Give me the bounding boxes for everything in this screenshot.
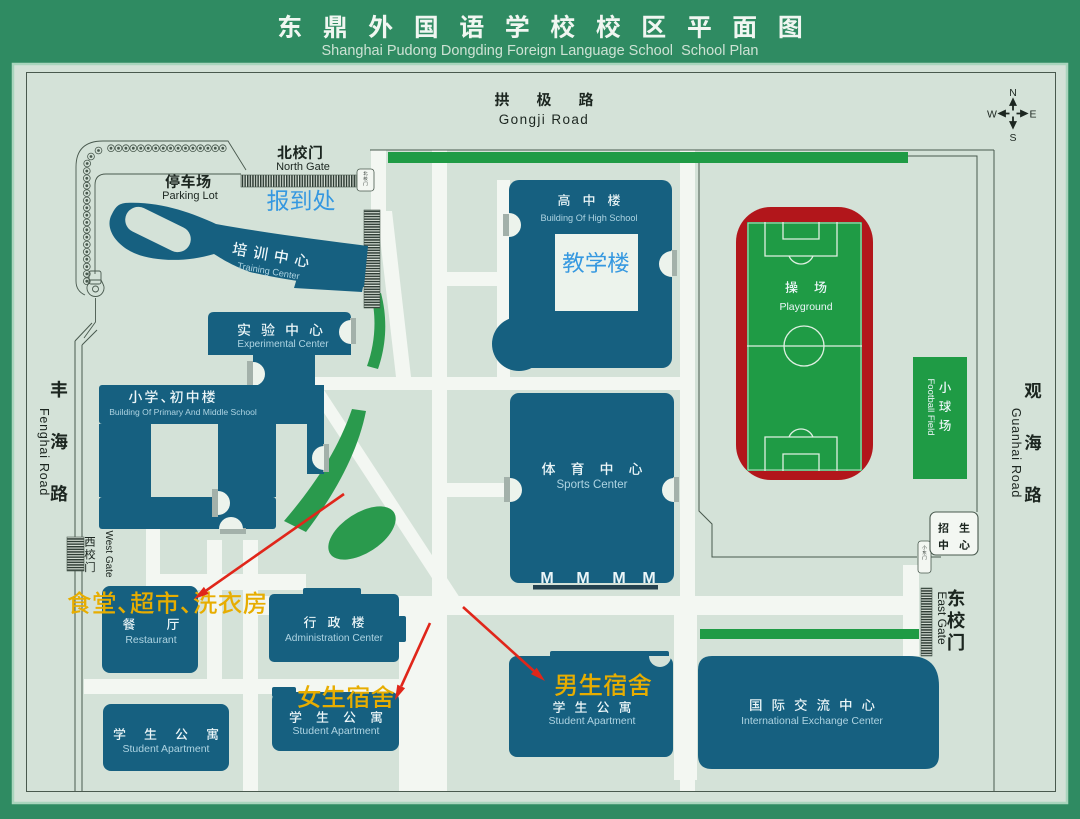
svg-text:Student Apartment: Student Apartment xyxy=(549,715,636,727)
svg-text:Guanhai Road: Guanhai Road xyxy=(1009,408,1023,498)
svg-text:M: M xyxy=(540,570,553,587)
svg-text:Playground: Playground xyxy=(779,301,832,313)
svg-text:North Gate: North Gate xyxy=(276,161,330,173)
svg-text:M: M xyxy=(642,570,655,587)
svg-text:S: S xyxy=(1009,132,1016,144)
svg-text:Gongji Road: Gongji Road xyxy=(499,112,589,127)
svg-text:Parking Lot: Parking Lot xyxy=(162,190,218,202)
svg-text:Restaurant: Restaurant xyxy=(125,634,176,646)
svg-text:Student Apartment: Student Apartment xyxy=(293,725,380,737)
svg-text:International Exchange Center: International Exchange Center xyxy=(741,715,883,727)
svg-text:W: W xyxy=(987,109,997,121)
svg-text:Student Apartment: Student Apartment xyxy=(123,743,210,755)
svg-text:E: E xyxy=(1029,109,1036,121)
svg-text:M: M xyxy=(612,570,625,587)
svg-text:Sports Center: Sports Center xyxy=(557,479,628,491)
svg-text:Administration Center: Administration Center xyxy=(285,633,384,644)
svg-text:Fenghai Road: Fenghai Road xyxy=(37,408,51,496)
svg-text:East Gate: East Gate xyxy=(935,591,949,645)
svg-text:Shanghai Pudong Dongding Forei: Shanghai Pudong Dongding Foreign Languag… xyxy=(322,43,759,59)
svg-text:Building Of Primary And Middle: Building Of Primary And Middle School xyxy=(109,407,257,417)
svg-text:Football Field: Football Field xyxy=(925,378,936,435)
svg-text:West Gate: West Gate xyxy=(103,530,114,577)
svg-text:N: N xyxy=(1009,87,1017,99)
svg-text:Experimental Center: Experimental Center xyxy=(237,339,329,350)
svg-text:Building Of High School: Building Of High School xyxy=(540,213,637,223)
svg-text:M: M xyxy=(576,570,589,587)
